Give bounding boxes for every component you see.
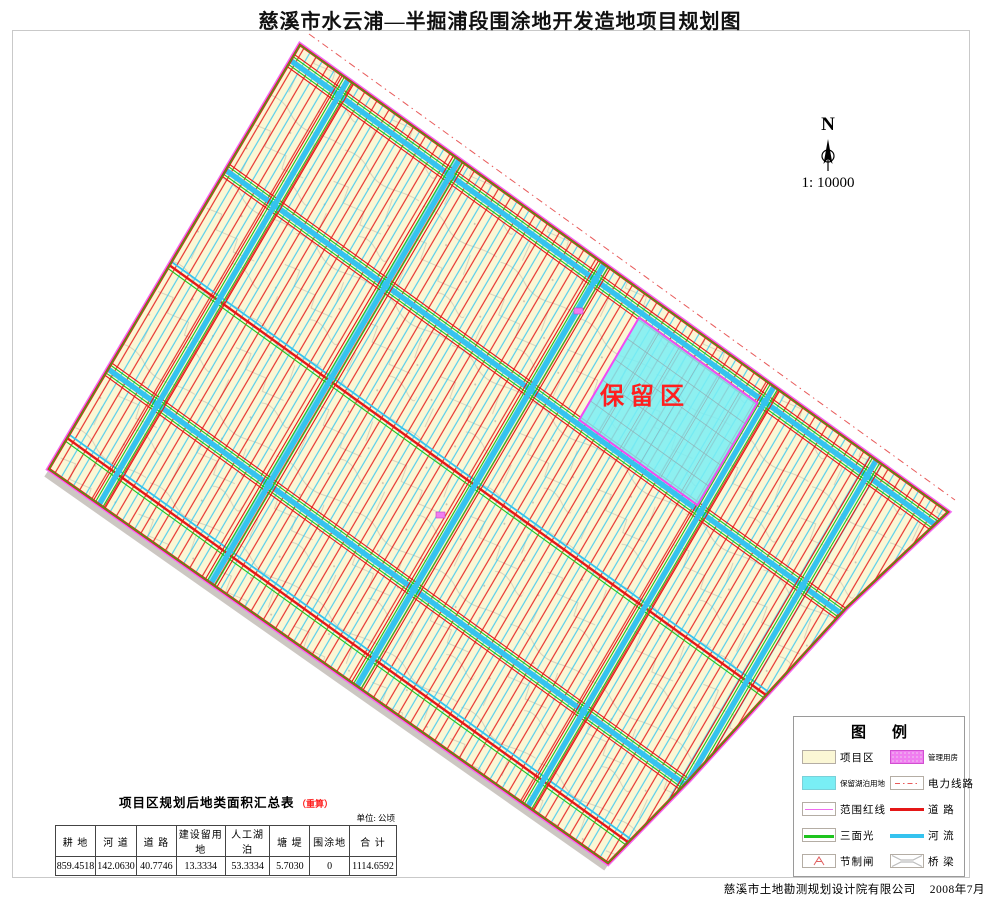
col-header: 围涂地 (310, 826, 350, 857)
legend-item-river: 河 流 (890, 828, 974, 843)
bridge-icon (890, 854, 924, 868)
scope-redline-icon (802, 802, 836, 816)
value-cell: 0 (310, 857, 350, 876)
legend-title: 图例 (802, 721, 956, 742)
river-line-icon (890, 828, 924, 842)
footer: 慈溪市土地勘测规划设计院有限公司 2008年7月 (724, 881, 985, 897)
power-line-icon (890, 776, 924, 790)
col-header: 合 计 (349, 826, 396, 857)
legend-item-sluice-gate: 节制闸 (802, 854, 890, 869)
col-header: 道 路 (136, 826, 176, 857)
legend-item-road: 道 路 (890, 802, 974, 817)
value-cell: 53.3334 (225, 857, 270, 876)
threeface-canal-icon (802, 828, 836, 842)
table-header-row: 耕 地 河 道 道 路 建设留用地 人工湖泊 塘 堤 围涂地 合 计 (56, 826, 397, 857)
value-cell: 859.4518 (56, 857, 96, 876)
legend-item-management-house: 管理用房 (890, 750, 974, 764)
table-note: （重算） (297, 799, 333, 809)
legend-item-reserved-lake: 保留湖泊用地 (802, 776, 890, 790)
legend-item-bridge: 桥 梁 (890, 854, 974, 869)
north-label: N (821, 114, 835, 135)
legend-item-power-line: 电力线路 (890, 776, 974, 791)
legend-item-project-area: 项目区 (802, 750, 890, 765)
legend-item-scope-redline: 范围红线 (802, 802, 890, 817)
management-house (436, 512, 445, 518)
management-house (574, 308, 583, 314)
table-value-row: 859.4518 142.0630 40.7746 13.3334 53.333… (56, 857, 397, 876)
col-header: 人工湖泊 (225, 826, 270, 857)
value-cell: 142.0630 (95, 857, 136, 876)
footer-date: 2008年7月 (930, 881, 985, 897)
table-title: 项目区规划后地类面积汇总表 (119, 796, 295, 810)
value-cell: 40.7746 (136, 857, 176, 876)
road-line-icon (890, 802, 924, 816)
table-unit: 单位: 公顷 (55, 812, 395, 824)
area-table: 耕 地 河 道 道 路 建设留用地 人工湖泊 塘 堤 围涂地 合 计 859.4… (55, 825, 397, 876)
col-header: 河 道 (95, 826, 136, 857)
legend: 图例 项目区 管理用房 保留湖泊用地 电力线路 范围红线 道 路 三面光 (793, 716, 965, 877)
col-header: 塘 堤 (270, 826, 310, 857)
value-cell: 5.7030 (270, 857, 310, 876)
scale-label: 1: 10000 (802, 175, 855, 191)
col-header: 建设留用地 (176, 826, 225, 857)
area-summary: 项目区规划后地类面积汇总表 （重算） 单位: 公顷 耕 地 河 道 道 路 建设… (55, 792, 397, 876)
footer-credit: 慈溪市土地勘测规划设计院有限公司 (724, 881, 916, 897)
value-cell: 1114.6592 (349, 857, 396, 876)
reserved-area-label: 保留区 (599, 383, 690, 410)
value-cell: 13.3334 (176, 857, 225, 876)
project-area-swatch (802, 750, 836, 764)
col-header: 耕 地 (56, 826, 96, 857)
management-house-swatch (890, 750, 924, 764)
north-arrow-icon (822, 139, 834, 171)
reserved-lake-swatch (802, 776, 836, 790)
compass: N 1: 10000 (802, 114, 855, 191)
legend-item-threeface-canal: 三面光 (802, 828, 890, 843)
sluice-gate-icon (802, 854, 836, 868)
